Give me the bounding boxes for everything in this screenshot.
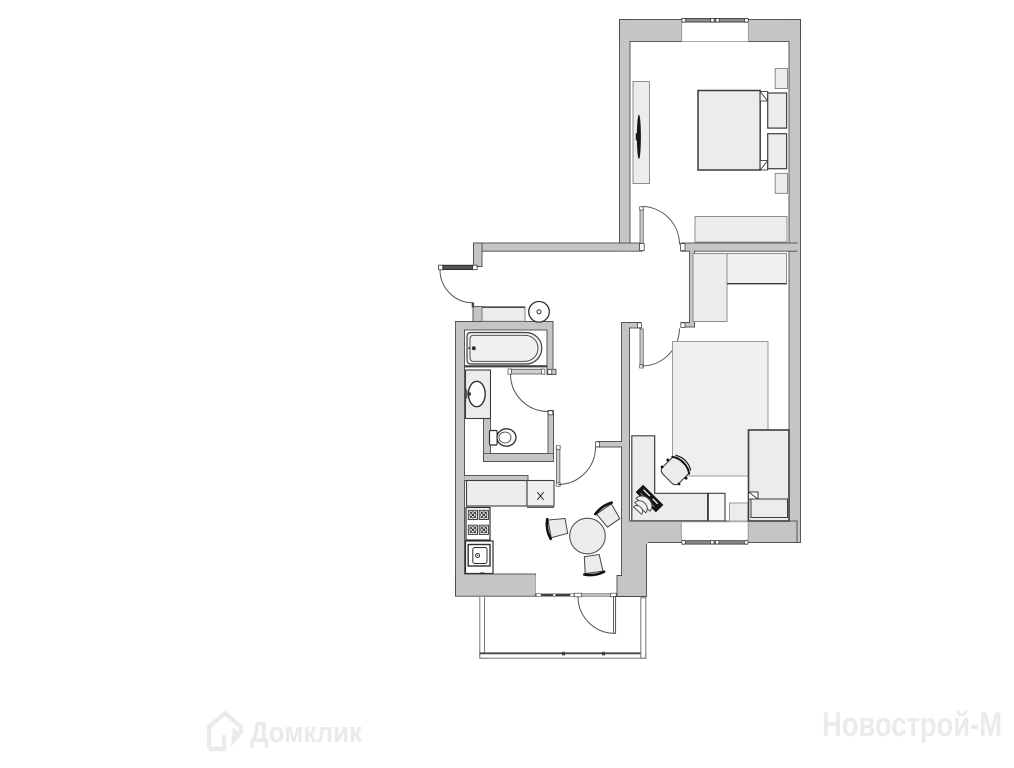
- svg-text:Новострой-М: Новострой-М: [822, 706, 1002, 744]
- svg-text:Домклик: Домклик: [250, 717, 362, 749]
